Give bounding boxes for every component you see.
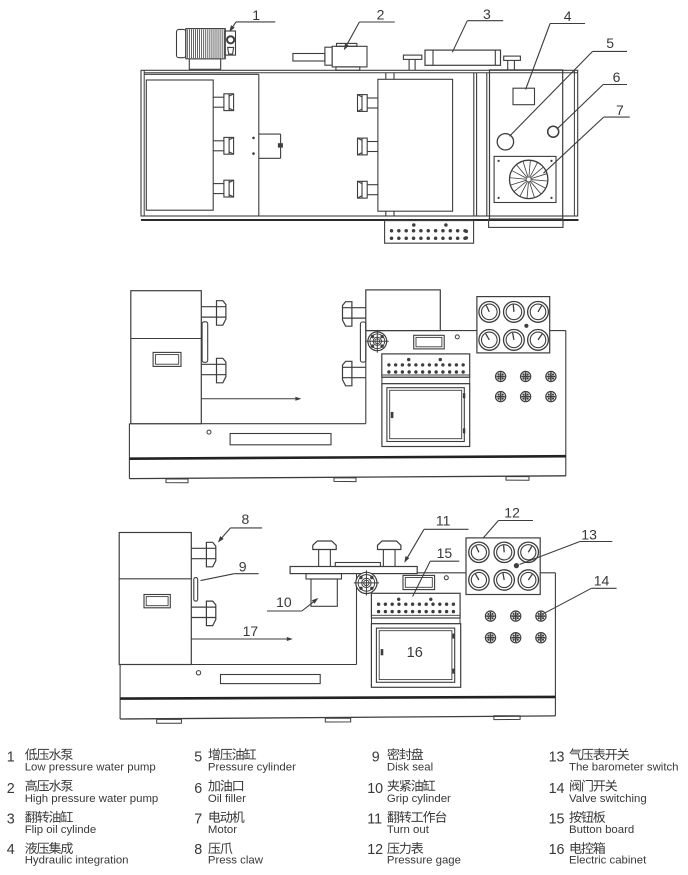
- svg-text:6: 6: [194, 781, 202, 797]
- svg-text:Flip oil cylinde: Flip oil cylinde: [25, 824, 97, 836]
- svg-text:2: 2: [377, 7, 385, 23]
- svg-text:Turn out: Turn out: [387, 824, 430, 836]
- svg-text:11: 11: [436, 513, 451, 529]
- svg-text:Grip cylinder: Grip cylinder: [387, 793, 451, 805]
- svg-text:3: 3: [483, 6, 491, 22]
- svg-text:14: 14: [549, 781, 565, 797]
- svg-text:9: 9: [372, 750, 380, 766]
- svg-text:2: 2: [7, 781, 15, 797]
- svg-text:4: 4: [7, 842, 15, 858]
- svg-text:Valve switching: Valve switching: [569, 793, 647, 805]
- svg-text:16: 16: [407, 645, 423, 661]
- svg-text:Electric cabinet: Electric cabinet: [569, 855, 647, 867]
- svg-text:Button board: Button board: [569, 824, 634, 836]
- svg-text:8: 8: [242, 511, 250, 527]
- svg-text:12: 12: [504, 504, 520, 520]
- svg-text:5: 5: [194, 750, 202, 766]
- svg-text:10: 10: [367, 781, 383, 797]
- svg-text:Motor: Motor: [208, 824, 237, 836]
- svg-text:9: 9: [239, 558, 247, 574]
- svg-text:6: 6: [613, 69, 621, 85]
- svg-text:16: 16: [549, 842, 565, 858]
- svg-text:Low pressure water pump: Low pressure water pump: [25, 762, 156, 774]
- svg-text:13: 13: [581, 526, 597, 542]
- svg-text:12: 12: [367, 842, 383, 858]
- svg-text:Press claw: Press claw: [208, 855, 264, 867]
- svg-text:14: 14: [594, 573, 610, 589]
- svg-text:1: 1: [7, 750, 15, 766]
- svg-text:Hydraulic integration: Hydraulic integration: [25, 855, 129, 867]
- svg-text:4: 4: [564, 8, 572, 24]
- svg-text:High pressure water pump: High pressure water pump: [25, 793, 159, 805]
- svg-text:13: 13: [549, 750, 565, 766]
- svg-text:Disk seal: Disk seal: [387, 762, 433, 774]
- svg-text:17: 17: [243, 623, 259, 639]
- svg-text:15: 15: [549, 811, 565, 827]
- svg-text:15: 15: [437, 545, 453, 561]
- svg-text:7: 7: [194, 811, 202, 827]
- svg-text:Pressure cylinder: Pressure cylinder: [208, 762, 296, 774]
- svg-text:5: 5: [606, 35, 614, 51]
- svg-text:3: 3: [7, 811, 15, 827]
- svg-text:7: 7: [616, 102, 624, 118]
- svg-text:10: 10: [276, 594, 292, 610]
- svg-text:Pressure gage: Pressure gage: [387, 855, 461, 867]
- svg-text:8: 8: [194, 842, 202, 858]
- svg-text:1: 1: [252, 7, 260, 23]
- svg-text:The barometer switch: The barometer switch: [569, 762, 679, 774]
- svg-text:Oil filler: Oil filler: [208, 793, 246, 805]
- svg-text:11: 11: [367, 811, 382, 827]
